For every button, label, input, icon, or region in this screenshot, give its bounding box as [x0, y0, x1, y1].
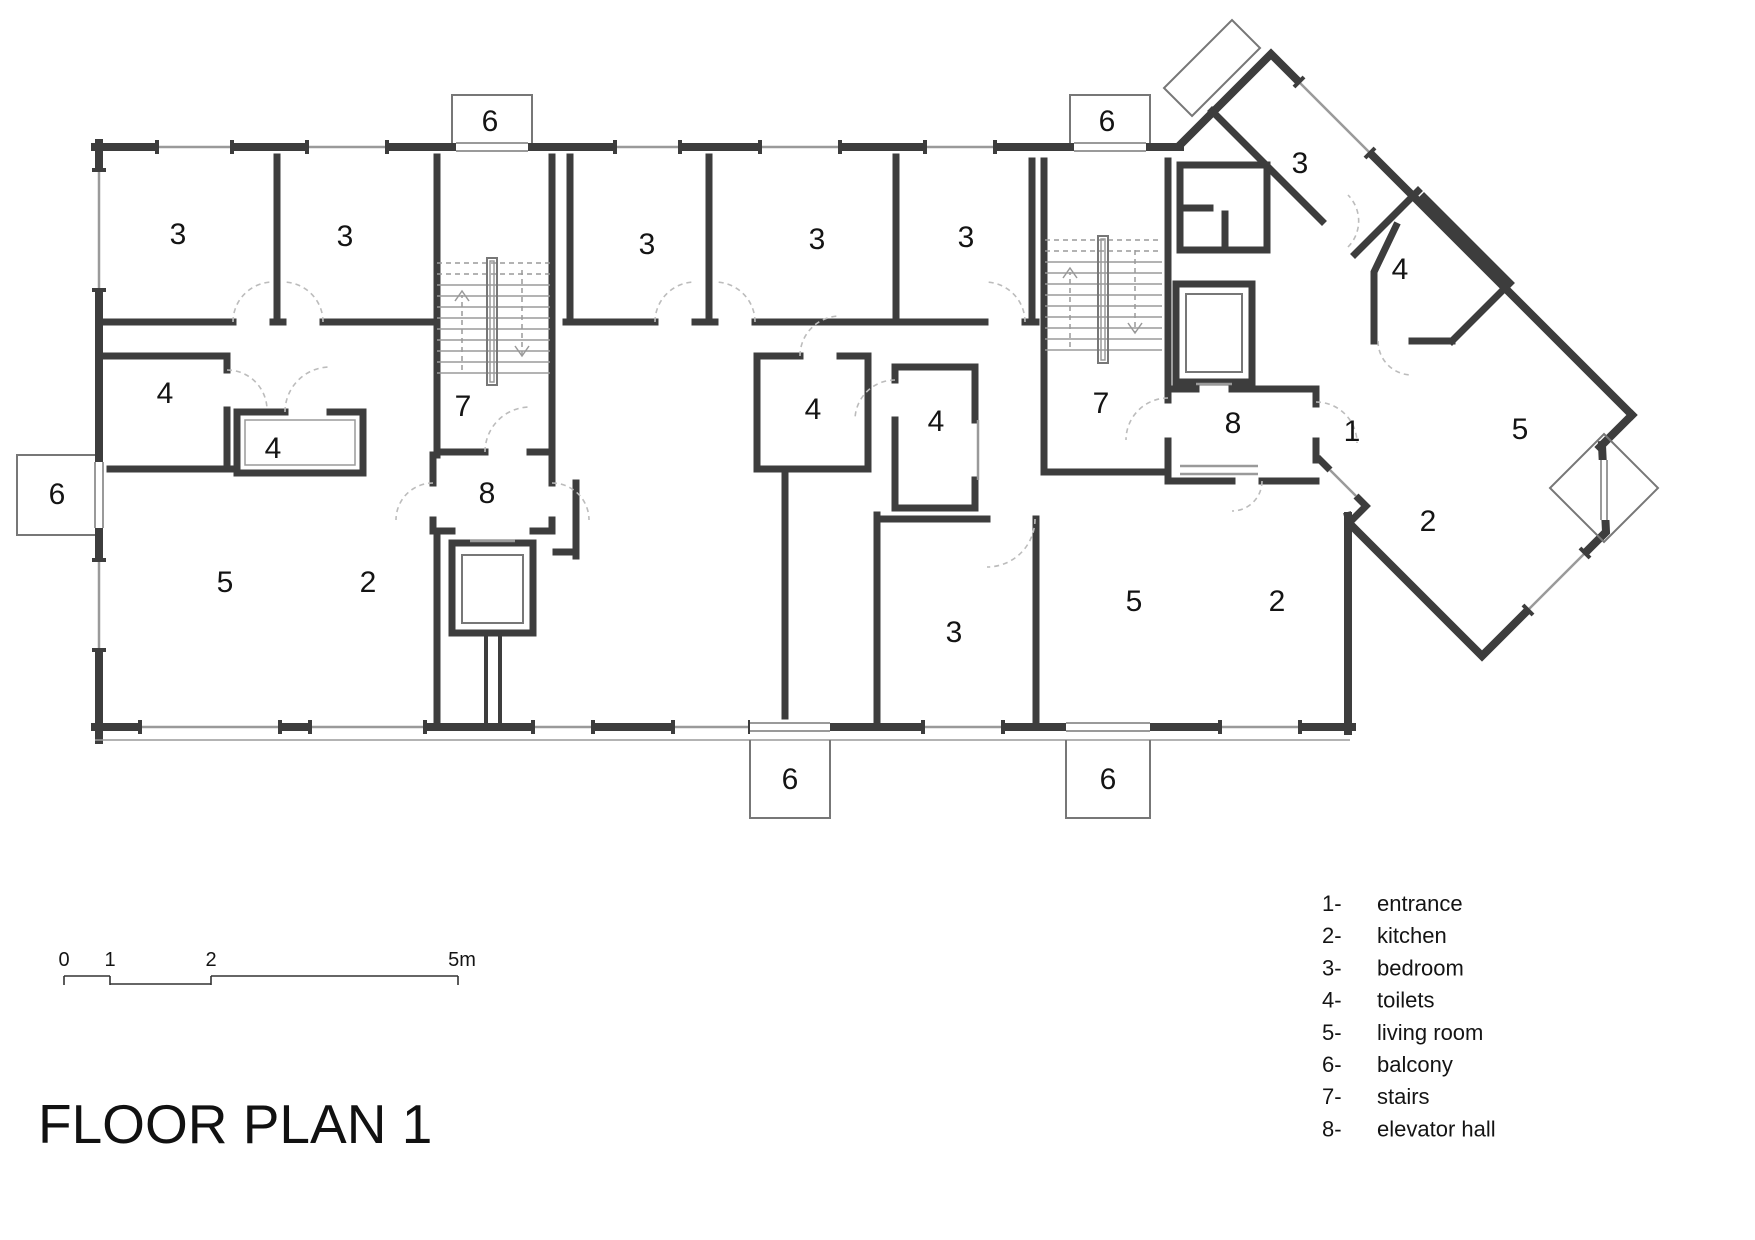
drawing-title: FLOOR PLAN 1 — [38, 1093, 432, 1155]
room-label: 4 — [1392, 253, 1409, 286]
room-label: 4 — [157, 377, 174, 410]
room-label: 8 — [479, 477, 496, 510]
windows — [92, 77, 1607, 740]
room-label: 5 — [1126, 585, 1143, 618]
floor-plan-page: 3333333444445552221778866666 0125m 1-ent… — [0, 0, 1755, 1240]
room-label: 3 — [946, 616, 963, 649]
legend-number: 1- — [1322, 891, 1342, 916]
legend-number: 2- — [1322, 923, 1342, 948]
room-label: 6 — [49, 478, 66, 511]
legend-label: bedroom — [1377, 955, 1464, 980]
room-label: 3 — [337, 220, 354, 253]
room-label: 6 — [1099, 105, 1116, 138]
legend-number: 8- — [1322, 1116, 1342, 1141]
room-label: 3 — [809, 223, 826, 256]
scale-tick-label: 2 — [205, 949, 216, 971]
legend-label: living room — [1377, 1020, 1483, 1045]
scale-tick-label: 1 — [104, 949, 115, 971]
legend-number: 7- — [1322, 1084, 1342, 1109]
room-label: 4 — [265, 432, 282, 465]
scale-bar: 0125m — [58, 949, 475, 985]
room-label: 3 — [170, 218, 187, 251]
room-label: 6 — [1100, 763, 1117, 796]
room-label: 2 — [360, 566, 377, 599]
elevator-right — [1176, 284, 1252, 384]
room-label: 7 — [1093, 387, 1110, 420]
legend-label: elevator hall — [1377, 1116, 1496, 1141]
room-label: 4 — [805, 393, 822, 426]
scale-tick-label: 0 — [58, 949, 69, 971]
legend-number: 3- — [1322, 955, 1342, 980]
legend: 1-entrance2-kitchen3-bedroom4-toilets5-l… — [1322, 891, 1496, 1141]
exterior-walls — [95, 54, 1632, 740]
room-label: 3 — [639, 228, 656, 261]
legend-label: toilets — [1377, 988, 1434, 1013]
legend-number: 6- — [1322, 1052, 1342, 1077]
room-label: 2 — [1269, 585, 1286, 618]
scale-tick-label: 5m — [448, 949, 476, 971]
stairs-left — [437, 258, 550, 385]
legend-label: entrance — [1377, 891, 1463, 916]
legend-number: 4- — [1322, 988, 1342, 1013]
stairs-right — [1045, 236, 1162, 363]
room-label: 6 — [782, 763, 799, 796]
room-label: 2 — [1420, 505, 1437, 538]
legend-number: 5- — [1322, 1020, 1342, 1045]
room-label: 5 — [1512, 413, 1529, 446]
legend-label: stairs — [1377, 1084, 1430, 1109]
elevator-left — [452, 541, 533, 723]
room-label: 3 — [958, 221, 975, 254]
legend-label: kitchen — [1377, 923, 1447, 948]
legend-label: balcony — [1377, 1052, 1453, 1077]
room-label: 1 — [1344, 415, 1361, 448]
room-label: 6 — [482, 105, 499, 138]
floorplan-drawing: 3333333444445552221778866666 0125m 1-ent… — [0, 0, 1755, 1240]
room-label: 3 — [1292, 147, 1309, 180]
room-label: 5 — [217, 566, 234, 599]
room-label: 7 — [455, 390, 472, 423]
room-label: 8 — [1225, 407, 1242, 440]
room-label: 4 — [928, 405, 945, 438]
